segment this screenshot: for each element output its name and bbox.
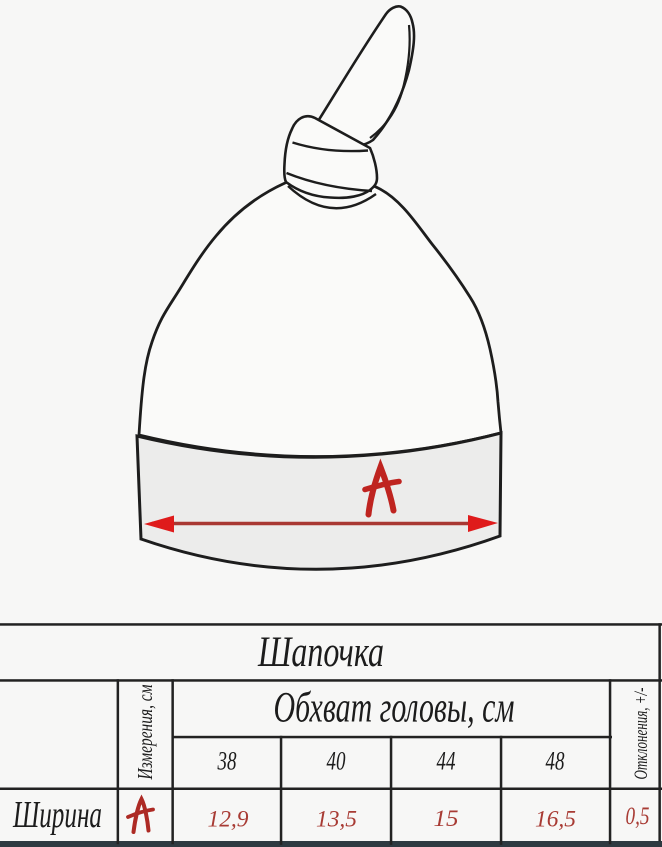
svg-text:48: 48 [546, 747, 565, 776]
svg-text:Шапочка: Шапочка [257, 629, 384, 676]
svg-text:16,5: 16,5 [535, 807, 576, 832]
svg-text:40: 40 [327, 747, 346, 776]
svg-text:13,5: 13,5 [316, 807, 357, 832]
svg-text:Ширина: Ширина [12, 794, 102, 836]
svg-text:Измерения, см: Измерения, см [133, 685, 157, 781]
svg-text:0,5: 0,5 [626, 803, 650, 830]
svg-text:Отклонения, +/-: Отклонения, +/- [631, 688, 652, 780]
svg-text:Обхват головы, см: Обхват головы, см [274, 685, 515, 732]
svg-text:38: 38 [217, 747, 237, 776]
svg-text:15: 15 [434, 806, 459, 831]
svg-text:44: 44 [437, 747, 456, 776]
svg-text:12,9: 12,9 [208, 807, 250, 832]
